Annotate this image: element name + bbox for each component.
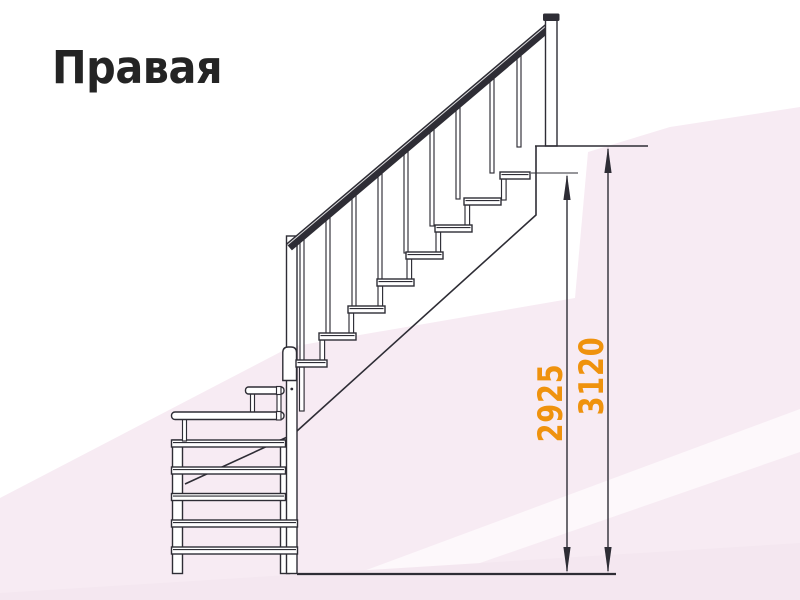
riser — [436, 232, 441, 254]
riser — [502, 179, 507, 200]
winder-tread — [172, 467, 286, 474]
baluster — [456, 105, 460, 199]
top-post-body — [546, 19, 558, 146]
staircase-diagram: 2925 3120 Правая — [0, 0, 800, 600]
baluster — [430, 127, 434, 226]
riser — [349, 313, 354, 335]
tread — [296, 360, 327, 367]
riser — [407, 259, 412, 281]
tread — [319, 333, 356, 340]
tread — [348, 306, 385, 313]
tread — [464, 198, 501, 205]
winder-tread — [172, 520, 298, 527]
baluster — [277, 393, 281, 413]
baluster — [404, 149, 408, 253]
baluster — [378, 171, 382, 280]
page-title: Правая — [52, 42, 222, 94]
winder-tread — [172, 547, 298, 554]
top-post-cap — [543, 14, 560, 22]
post-dowel-dot — [290, 388, 293, 391]
winder-tread — [172, 494, 286, 501]
tread — [406, 252, 443, 259]
baluster — [352, 194, 356, 308]
diagram-canvas: 2925 3120 Правая — [0, 0, 800, 600]
tread — [500, 172, 530, 179]
riser — [320, 340, 325, 362]
baluster — [517, 53, 521, 147]
winder-tread — [172, 440, 286, 447]
baluster — [300, 238, 304, 361]
rail-end-cap — [283, 347, 297, 381]
baluster — [183, 419, 187, 441]
winder-handrail-long — [172, 412, 285, 420]
riser — [300, 367, 305, 411]
baluster — [251, 393, 255, 413]
tread — [377, 279, 414, 286]
baluster — [326, 216, 330, 334]
rail-end-tick — [277, 412, 282, 421]
baluster — [490, 76, 494, 173]
top-newel-post — [543, 14, 560, 147]
dimension-label-outer: 3120 — [572, 337, 612, 416]
rail-end-tick — [277, 387, 282, 395]
riser — [378, 286, 383, 308]
tread — [435, 225, 472, 232]
riser — [465, 205, 470, 227]
dimension-label-inner: 2925 — [531, 364, 571, 443]
